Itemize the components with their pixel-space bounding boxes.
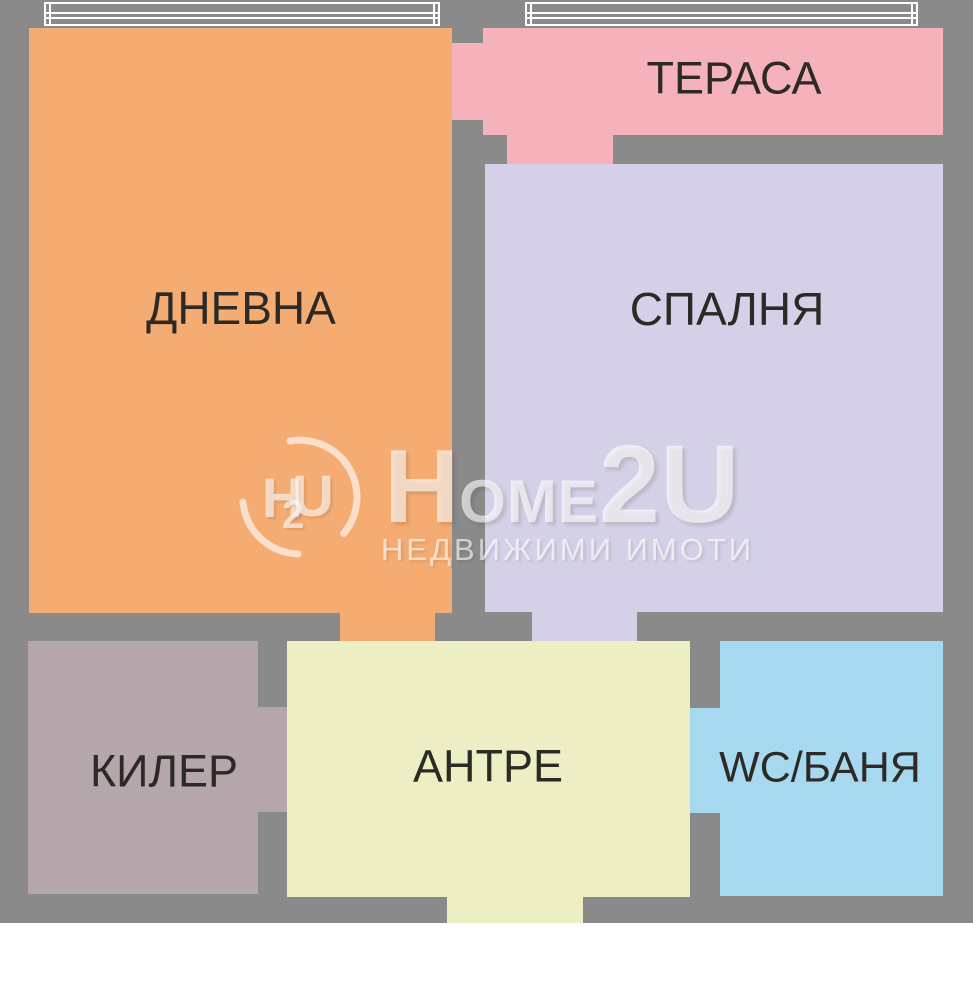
door-living-to-hall xyxy=(340,613,435,641)
window-bar xyxy=(46,17,438,19)
floor-plan-walls: H 2 U HOME2U НЕДВИЖИМИ ИМОТИ ДНЕВНА ТЕРА… xyxy=(0,0,973,923)
room-label-hall: АНТРЕ xyxy=(413,744,563,789)
window-end-cap xyxy=(49,4,51,24)
door-terrace-to-bedroom xyxy=(507,135,613,164)
room-label-living: ДНЕВНА xyxy=(146,285,336,331)
railing-bar xyxy=(527,12,916,14)
room-label-bath: WC/БАНЯ xyxy=(719,747,921,790)
door-bedroom-to-hall xyxy=(532,612,637,641)
railing-end-cap xyxy=(530,4,532,24)
floor-plan: H 2 U HOME2U НЕДВИЖИМИ ИМОТИ ДНЕВНА ТЕРА… xyxy=(0,0,973,1000)
room-label-bedroom: СПАЛНЯ xyxy=(630,286,825,332)
railing-end-cap xyxy=(525,4,527,24)
window-end-cap xyxy=(438,4,440,24)
room-bedroom xyxy=(485,164,943,612)
door-bath-to-hall xyxy=(690,708,720,813)
window-bar xyxy=(46,12,438,14)
room-label-terrace: ТЕРАСА xyxy=(646,56,821,101)
door-hall-to-entrance xyxy=(447,897,583,923)
window-end-cap xyxy=(433,4,435,24)
door-closet-to-hall xyxy=(258,707,287,812)
entrance-strip: ВХОД xyxy=(0,923,973,1000)
railing-bar xyxy=(527,17,916,19)
terrace-railing xyxy=(525,2,918,26)
railing-end-cap xyxy=(916,4,918,24)
door-terrace-to-living xyxy=(452,43,483,120)
living-room-window xyxy=(44,2,440,26)
room-label-closet: КИЛЕР xyxy=(90,749,238,794)
window-end-cap xyxy=(44,4,46,24)
railing-end-cap xyxy=(911,4,913,24)
